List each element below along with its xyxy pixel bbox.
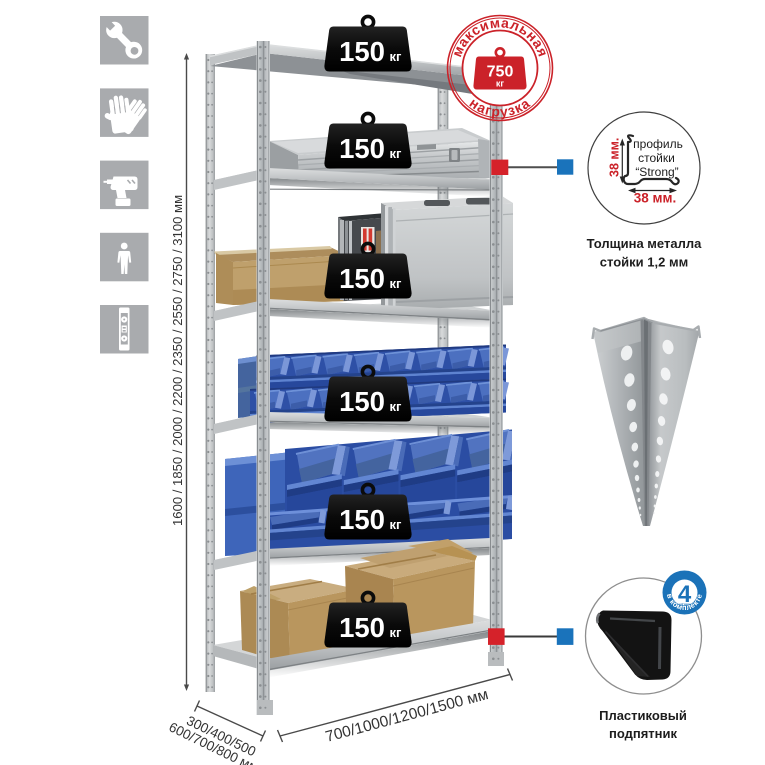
svg-text:кг: кг bbox=[496, 79, 505, 89]
svg-text:стойки 1,2 мм: стойки 1,2 мм bbox=[600, 255, 688, 270]
svg-text:кг: кг bbox=[390, 276, 403, 291]
svg-text:“Strong”: “Strong” bbox=[635, 165, 678, 179]
svg-text:150: 150 bbox=[339, 36, 385, 67]
svg-text:150: 150 bbox=[339, 263, 385, 294]
svg-text:подпятник: подпятник bbox=[609, 726, 678, 741]
svg-text:кг: кг bbox=[390, 49, 403, 64]
svg-text:стойки: стойки bbox=[638, 151, 675, 165]
svg-text:Толщина металла: Толщина металла bbox=[587, 236, 702, 251]
svg-text:кг: кг bbox=[390, 146, 403, 161]
svg-text:38 мм.: 38 мм. bbox=[634, 191, 677, 206]
svg-text:150: 150 bbox=[339, 386, 385, 417]
svg-text:150: 150 bbox=[339, 612, 385, 643]
svg-text:профиль: профиль bbox=[633, 137, 683, 151]
svg-text:150: 150 bbox=[339, 133, 385, 164]
svg-text:кг: кг bbox=[390, 517, 403, 532]
svg-text:38 мм.: 38 мм. bbox=[608, 138, 622, 177]
svg-text:Пластиковый: Пластиковый bbox=[599, 708, 687, 723]
svg-text:кг: кг bbox=[390, 399, 403, 414]
svg-text:1600 / 1850 / 2000 / 2200 / 23: 1600 / 1850 / 2000 / 2200 / 2350 / 2550 … bbox=[170, 195, 185, 526]
svg-text:кг: кг bbox=[390, 625, 403, 640]
svg-text:150: 150 bbox=[339, 504, 385, 535]
